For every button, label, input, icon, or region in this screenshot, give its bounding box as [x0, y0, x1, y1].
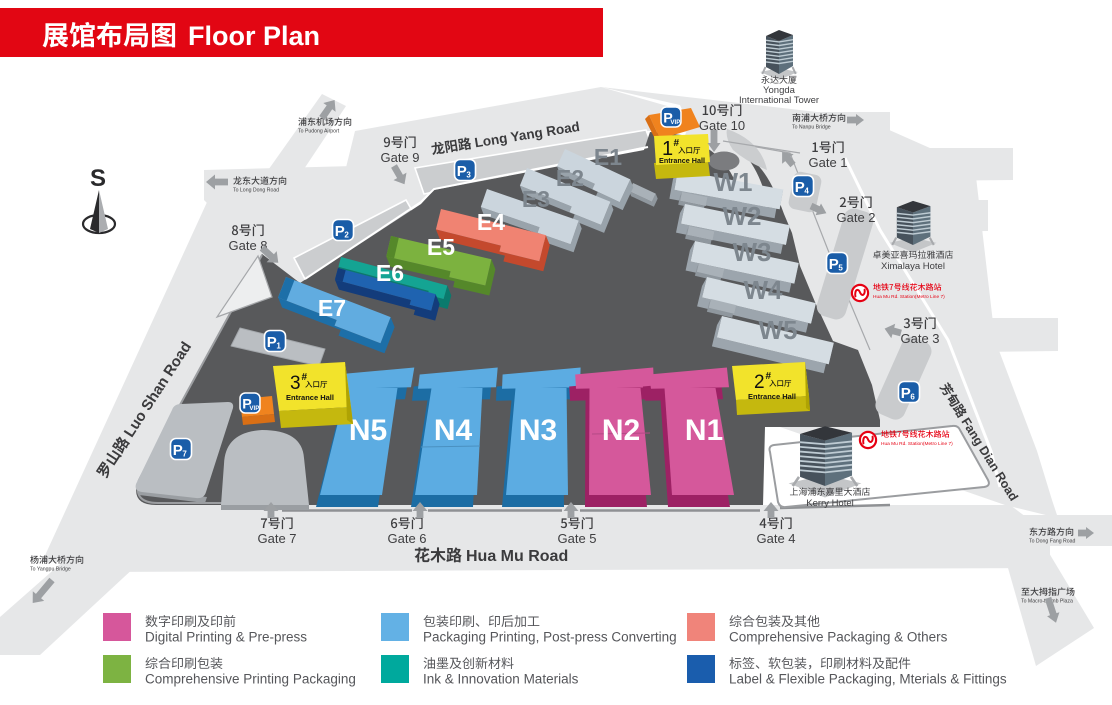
- svg-text:W2: W2: [723, 201, 762, 231]
- svg-text:Gate 4: Gate 4: [756, 531, 795, 546]
- svg-text:P: P: [267, 334, 277, 351]
- svg-text:N4: N4: [434, 414, 473, 447]
- svg-text:P: P: [901, 385, 911, 402]
- svg-text:P: P: [457, 163, 467, 180]
- svg-text:7: 7: [182, 450, 187, 459]
- svg-text:E4: E4: [477, 209, 505, 235]
- svg-text:N1: N1: [685, 414, 723, 447]
- svg-text:W4: W4: [744, 275, 784, 305]
- svg-text:P: P: [173, 442, 183, 459]
- svg-text:Digital Printing & Pre-press: Digital Printing & Pre-press: [145, 630, 307, 645]
- svg-text:To Dong Fang Road: To Dong Fang Road: [1029, 539, 1076, 545]
- svg-text:2: 2: [344, 231, 349, 240]
- svg-text:To Pudong Airport: To Pudong Airport: [298, 129, 340, 135]
- svg-text:International Tower: International Tower: [739, 95, 819, 106]
- svg-text:N3: N3: [519, 414, 557, 447]
- svg-text:To Nanpu Bridge: To Nanpu Bridge: [792, 125, 831, 131]
- svg-text:E7: E7: [318, 295, 346, 321]
- svg-text:5: 5: [838, 264, 843, 273]
- svg-text:3: 3: [466, 171, 471, 180]
- svg-text:E5: E5: [427, 234, 455, 260]
- svg-text:Ink & Innovation Materials: Ink & Innovation Materials: [423, 672, 579, 687]
- svg-text:#: #: [766, 371, 772, 382]
- svg-text:To Yangpu Bridge: To Yangpu Bridge: [30, 567, 71, 573]
- svg-text:#: #: [302, 372, 308, 383]
- svg-text:4: 4: [804, 187, 809, 196]
- svg-text:P: P: [829, 256, 839, 273]
- svg-text:Label & Flexible Packaging, Mt: Label & Flexible Packaging, Mterials & F…: [729, 672, 1007, 687]
- svg-text:Packaging Printing, Post-press: Packaging Printing, Post-press Convertin…: [423, 630, 677, 645]
- svg-text:E1: E1: [594, 144, 622, 170]
- svg-text:S: S: [90, 165, 106, 192]
- svg-text:Hua Mu Rd. Station(Metro Line: Hua Mu Rd. Station(Metro Line 7): [873, 294, 945, 300]
- svg-text:E6: E6: [376, 260, 404, 286]
- svg-text:Kerry Hotel: Kerry Hotel: [806, 498, 854, 509]
- svg-text:Entrance Hall: Entrance Hall: [286, 393, 334, 402]
- svg-text:Gate 2: Gate 2: [836, 210, 875, 225]
- svg-text:3: 3: [290, 373, 301, 394]
- svg-text:Gate 7: Gate 7: [257, 531, 296, 546]
- svg-text:Ximalaya Hotel: Ximalaya Hotel: [881, 261, 945, 272]
- svg-text:W5: W5: [759, 315, 798, 345]
- svg-text:P: P: [795, 179, 805, 196]
- svg-text:Gate 10: Gate 10: [699, 118, 745, 133]
- svg-text:Hua Mu Rd. Station(Metro Line: Hua Mu Rd. Station(Metro Line 7): [881, 441, 953, 447]
- svg-text:E3: E3: [522, 186, 550, 212]
- svg-text:N2: N2: [602, 414, 640, 447]
- svg-text:Comprehensive Packaging & Othe: Comprehensive Packaging & Others: [729, 630, 948, 645]
- svg-text:Gate 1: Gate 1: [808, 155, 847, 170]
- svg-text:E2: E2: [556, 165, 584, 191]
- svg-text:Hua Mu Road: Hua Mu Road: [466, 548, 568, 565]
- svg-text:2: 2: [754, 372, 765, 393]
- svg-text:#: #: [674, 138, 680, 149]
- svg-text:Gate 5: Gate 5: [557, 531, 596, 546]
- svg-text:6: 6: [910, 393, 915, 402]
- svg-text:Gate 9: Gate 9: [380, 150, 419, 165]
- svg-text:N5: N5: [349, 414, 387, 447]
- svg-text:To Long Dong Road: To Long Dong Road: [233, 188, 279, 194]
- svg-text:VIP: VIP: [670, 119, 680, 126]
- svg-text:P: P: [335, 223, 345, 240]
- svg-text:1: 1: [276, 342, 281, 351]
- svg-text:Entrance Hall: Entrance Hall: [748, 392, 796, 401]
- svg-text:Gate 6: Gate 6: [387, 531, 426, 546]
- svg-text:Floor Plan: Floor Plan: [188, 21, 320, 51]
- svg-text:W3: W3: [733, 237, 772, 267]
- svg-text:VIP: VIP: [249, 405, 259, 412]
- svg-text:W1: W1: [714, 167, 753, 197]
- svg-text:Comprehensive Printing Packagi: Comprehensive Printing Packaging: [145, 672, 356, 687]
- svg-text:Gate 3: Gate 3: [900, 331, 939, 346]
- svg-text:Entrance Hall: Entrance Hall: [659, 156, 705, 165]
